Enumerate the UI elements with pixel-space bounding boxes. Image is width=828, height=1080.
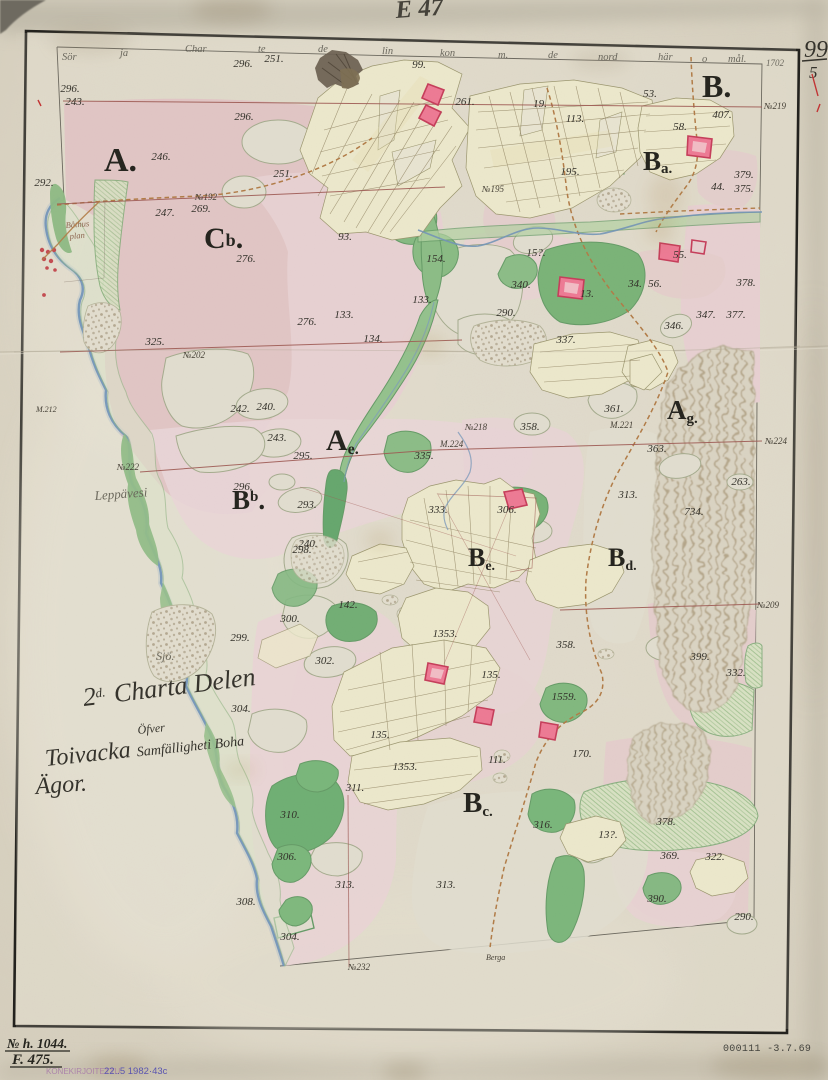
svg-text:296.: 296.	[233, 58, 252, 70]
svg-text:Ägor.: Ägor.	[33, 770, 88, 800]
svg-text:390.: 390.	[646, 893, 666, 905]
svg-text:243.: 243.	[267, 432, 286, 444]
svg-text:295.: 295.	[293, 450, 312, 462]
svg-text:134.: 134.	[363, 333, 382, 345]
svg-text:13?.: 13?.	[598, 829, 617, 841]
svg-text:53.: 53.	[643, 88, 657, 100]
svg-text:15?.: 15?.	[526, 247, 545, 259]
svg-text:251.: 251.	[264, 53, 283, 65]
svg-text:269.: 269.	[191, 203, 210, 215]
svg-text:34.: 34.	[627, 278, 642, 290]
svg-text:304.: 304.	[230, 703, 250, 715]
svg-text:290.: 290.	[496, 307, 515, 319]
svg-text:19.: 19.	[533, 98, 547, 110]
svg-text:111.: 111.	[488, 754, 506, 766]
svg-text:242.: 242.	[230, 403, 249, 415]
svg-text:293.: 293.	[297, 499, 316, 511]
svg-text:56.: 56.	[648, 278, 662, 290]
svg-text:135.: 135.	[481, 669, 500, 681]
svg-text:399.: 399.	[689, 651, 709, 663]
svg-text:Sör: Sör	[62, 52, 78, 63]
svg-text:№209: №209	[756, 600, 779, 610]
svg-text:311.: 311.	[345, 782, 364, 794]
svg-text:Berga: Berga	[486, 953, 505, 962]
svg-text:154.: 154.	[426, 253, 445, 265]
svg-text:Cb.: Cb.	[204, 222, 243, 255]
svg-text:361.: 361.	[603, 403, 623, 415]
svg-text:000111 -3.7.69: 000111 -3.7.69	[723, 1044, 811, 1055]
svg-text:1353.: 1353.	[393, 761, 418, 773]
svg-text:E 47: E 47	[394, 0, 446, 24]
svg-text:240.: 240.	[256, 401, 275, 413]
svg-text:363.: 363.	[646, 443, 666, 455]
svg-text:№192: №192	[194, 192, 217, 202]
svg-text:№218: №218	[464, 422, 487, 432]
svg-text:M.212: M.212	[35, 405, 57, 414]
svg-text:1702: 1702	[766, 58, 785, 68]
svg-text:Sjö.: Sjö.	[156, 649, 174, 663]
svg-text:ja: ja	[118, 48, 128, 59]
svg-text:№ h. 1044.: № h. 1044.	[6, 1036, 67, 1051]
svg-text:292.: 292.	[34, 177, 53, 189]
svg-text:276.: 276.	[236, 253, 255, 265]
svg-text:M.221: M.221	[609, 420, 633, 430]
svg-text:här: här	[658, 52, 674, 63]
svg-text:308.: 308.	[235, 896, 255, 908]
svg-text:o: o	[702, 54, 707, 65]
svg-text:296.: 296.	[60, 83, 79, 95]
svg-text:313.: 313.	[617, 489, 637, 501]
svg-text:243.: 243.	[65, 96, 84, 108]
svg-text:F. 475.: F. 475.	[11, 1052, 54, 1068]
svg-text:734.: 734.	[684, 506, 703, 518]
svg-text:135.: 135.	[370, 729, 389, 741]
svg-text:263.: 263.	[731, 476, 750, 488]
svg-text:de: de	[548, 50, 558, 61]
svg-text:313.: 313.	[334, 879, 354, 891]
svg-text:251.: 251.	[273, 168, 292, 180]
svg-text:347.: 347.	[695, 309, 715, 321]
svg-text:№195: №195	[481, 184, 504, 194]
svg-text:261.: 261.	[455, 96, 474, 108]
svg-text:№232: №232	[347, 962, 370, 972]
svg-text:246.: 246.	[151, 151, 170, 163]
svg-text:44.: 44.	[711, 181, 725, 193]
svg-text:313.: 313.	[435, 879, 455, 891]
svg-text:te: te	[258, 44, 266, 55]
svg-text:377.: 377.	[725, 309, 745, 321]
svg-text:142.: 142.	[338, 599, 357, 611]
svg-text:340.: 340.	[510, 279, 530, 291]
svg-text:195.: 195.	[560, 166, 579, 178]
svg-text:296.: 296.	[233, 481, 252, 493]
svg-text:306.: 306.	[496, 504, 516, 516]
svg-text:333.: 333.	[427, 504, 447, 516]
svg-text:306.: 306.	[276, 851, 296, 863]
svg-text:№202: №202	[182, 350, 205, 360]
svg-text:mål.: mål.	[728, 54, 746, 65]
svg-text:Öfver: Öfver	[137, 719, 166, 737]
svg-text:346.: 346.	[663, 320, 683, 332]
svg-text:240.: 240.	[298, 538, 317, 550]
svg-text:99.: 99.	[412, 59, 426, 71]
svg-text:358.: 358.	[555, 639, 575, 651]
svg-text:133.: 133.	[412, 294, 431, 306]
svg-text:133.: 133.	[334, 309, 353, 321]
svg-text:M.224: M.224	[439, 439, 464, 449]
svg-text:300.: 300.	[279, 613, 299, 625]
svg-text:322.: 322.	[704, 851, 724, 863]
svg-text:58.: 58.	[673, 121, 687, 133]
svg-text:290.: 290.	[734, 911, 753, 923]
svg-text:337.: 337.	[555, 334, 575, 346]
svg-text:276.: 276.	[297, 316, 316, 328]
svg-text:22..5 1982·43c: 22..5 1982·43c	[104, 1066, 168, 1077]
svg-text:335.: 335.	[413, 450, 433, 462]
svg-text:170.: 170.	[572, 748, 591, 760]
svg-text:299.: 299.	[230, 632, 249, 644]
svg-text:325.: 325.	[144, 336, 164, 348]
svg-text:55.: 55.	[673, 249, 687, 261]
svg-text:296.: 296.	[234, 111, 253, 123]
svg-text:304.: 304.	[279, 931, 299, 943]
svg-text:№222: №222	[116, 462, 139, 472]
svg-text:358.: 358.	[519, 421, 539, 433]
svg-text:375.: 375.	[733, 183, 753, 195]
svg-text:316.: 316.	[532, 819, 552, 831]
svg-text:1559.: 1559.	[552, 691, 577, 703]
svg-text:407.: 407.	[712, 109, 731, 121]
svg-text:378.: 378.	[735, 277, 755, 289]
svg-text:de: de	[318, 44, 328, 55]
svg-text:Char: Char	[185, 44, 208, 55]
svg-text:93.: 93.	[338, 231, 352, 243]
svg-text:№224: №224	[764, 436, 787, 446]
svg-text:kon: kon	[440, 48, 455, 59]
svg-text:379.: 379.	[733, 169, 753, 181]
svg-text:13.: 13.	[580, 288, 594, 300]
svg-text:B.: B.	[702, 68, 731, 104]
svg-text:247.: 247.	[155, 207, 174, 219]
svg-text:m.: m.	[498, 50, 508, 61]
svg-text:lin: lin	[382, 46, 393, 57]
svg-text:A.: A.	[104, 142, 137, 179]
svg-text:№219: №219	[763, 101, 786, 111]
svg-text:1353.: 1353.	[433, 628, 458, 640]
svg-text:378.: 378.	[655, 816, 675, 828]
svg-text:310.: 310.	[279, 809, 299, 821]
svg-text:302.: 302.	[314, 655, 334, 667]
svg-text:nord: nord	[598, 52, 618, 63]
svg-text:369.: 369.	[659, 850, 679, 862]
svg-text:332.: 332.	[725, 667, 745, 679]
svg-text:113.: 113.	[566, 113, 584, 125]
